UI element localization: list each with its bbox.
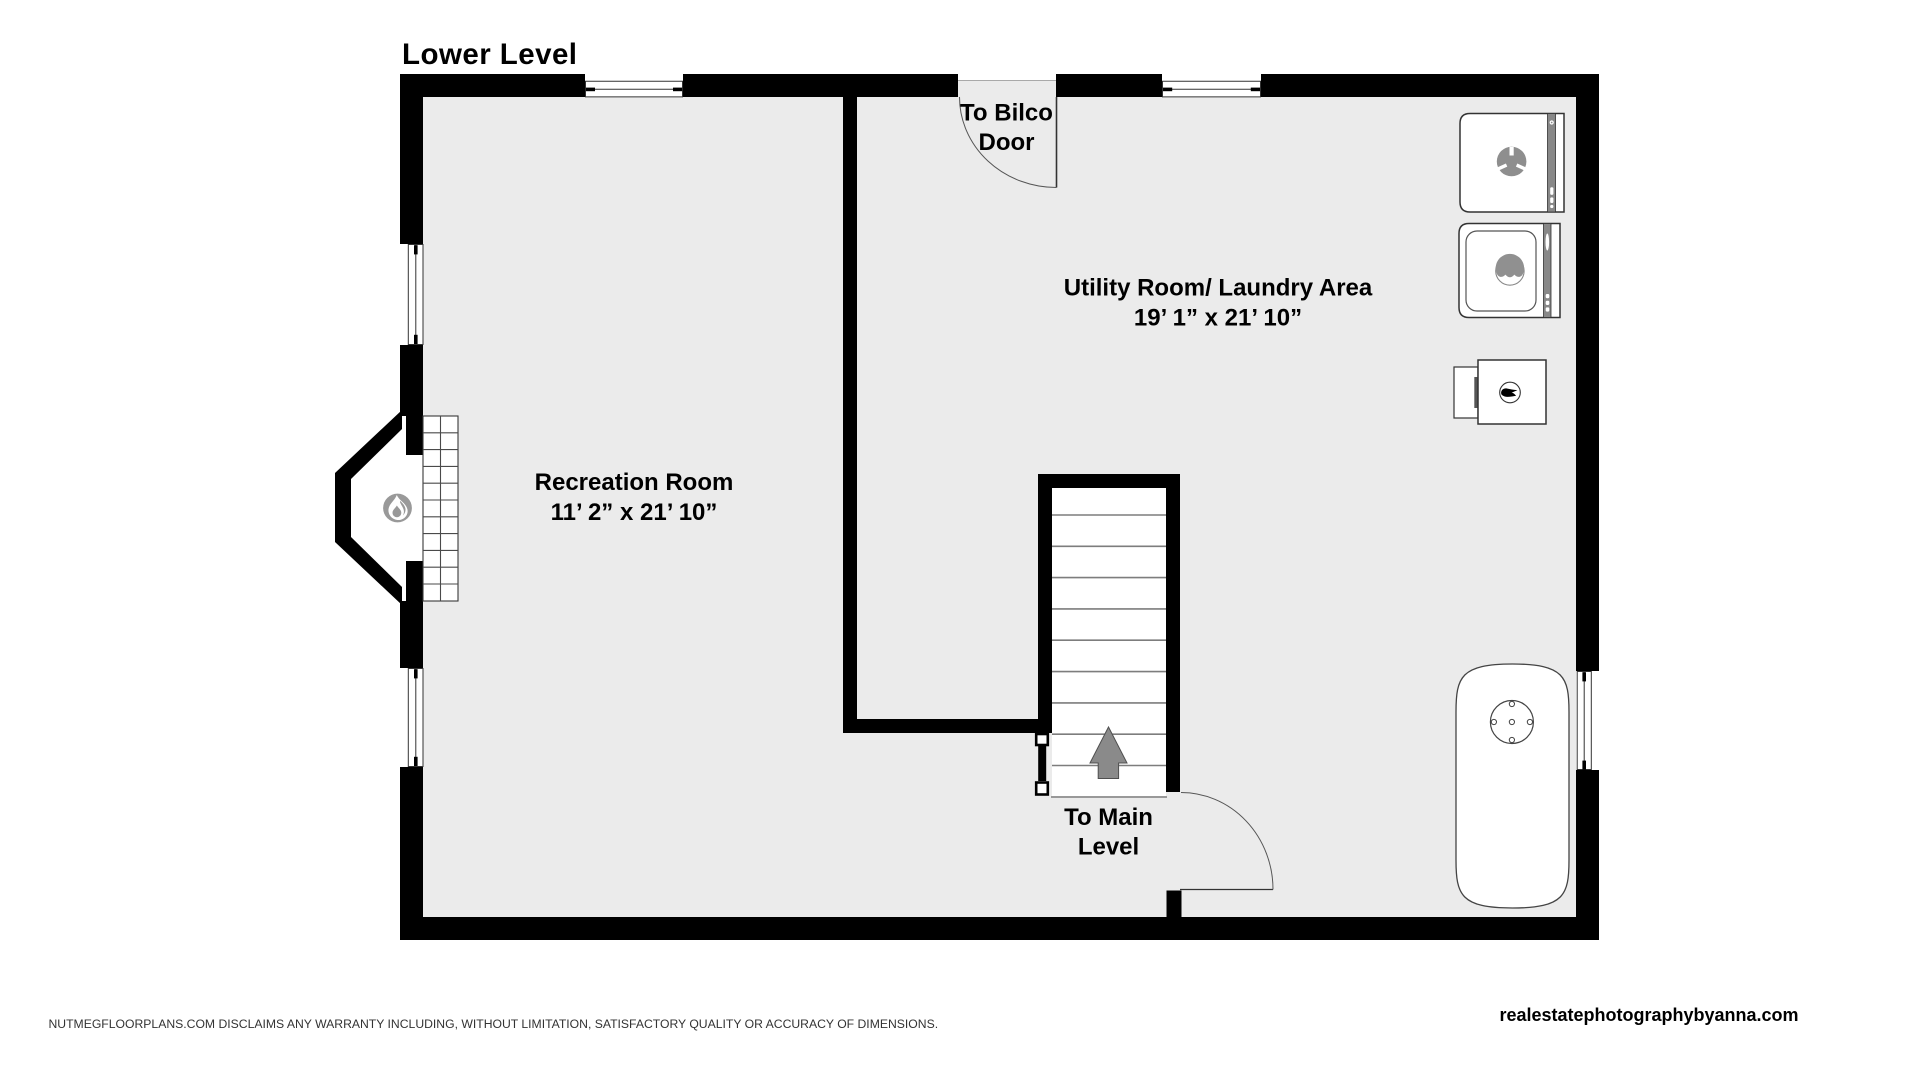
svg-text:Lower Level: Lower Level: [402, 38, 577, 71]
svg-text:To Main: To Main: [1064, 804, 1153, 831]
svg-text:realestatephotographybyanna.co: realestatephotographybyanna.com: [1499, 1005, 1798, 1025]
svg-text:11’ 2” x 21’ 10”: 11’ 2” x 21’ 10”: [551, 499, 718, 526]
svg-text:To Bilco: To Bilco: [960, 99, 1053, 126]
svg-text:Recreation Room: Recreation Room: [535, 469, 734, 496]
svg-text:Door: Door: [979, 129, 1035, 156]
svg-text:NUTMEGFLOORPLANS.COM DISCLAIMS: NUTMEGFLOORPLANS.COM DISCLAIMS ANY WARRA…: [49, 1017, 939, 1031]
svg-text:Utility Room/ Laundry Area: Utility Room/ Laundry Area: [1064, 275, 1373, 302]
svg-text:Level: Level: [1078, 833, 1139, 860]
svg-text:19’ 1” x 21’ 10”: 19’ 1” x 21’ 10”: [1134, 304, 1302, 331]
